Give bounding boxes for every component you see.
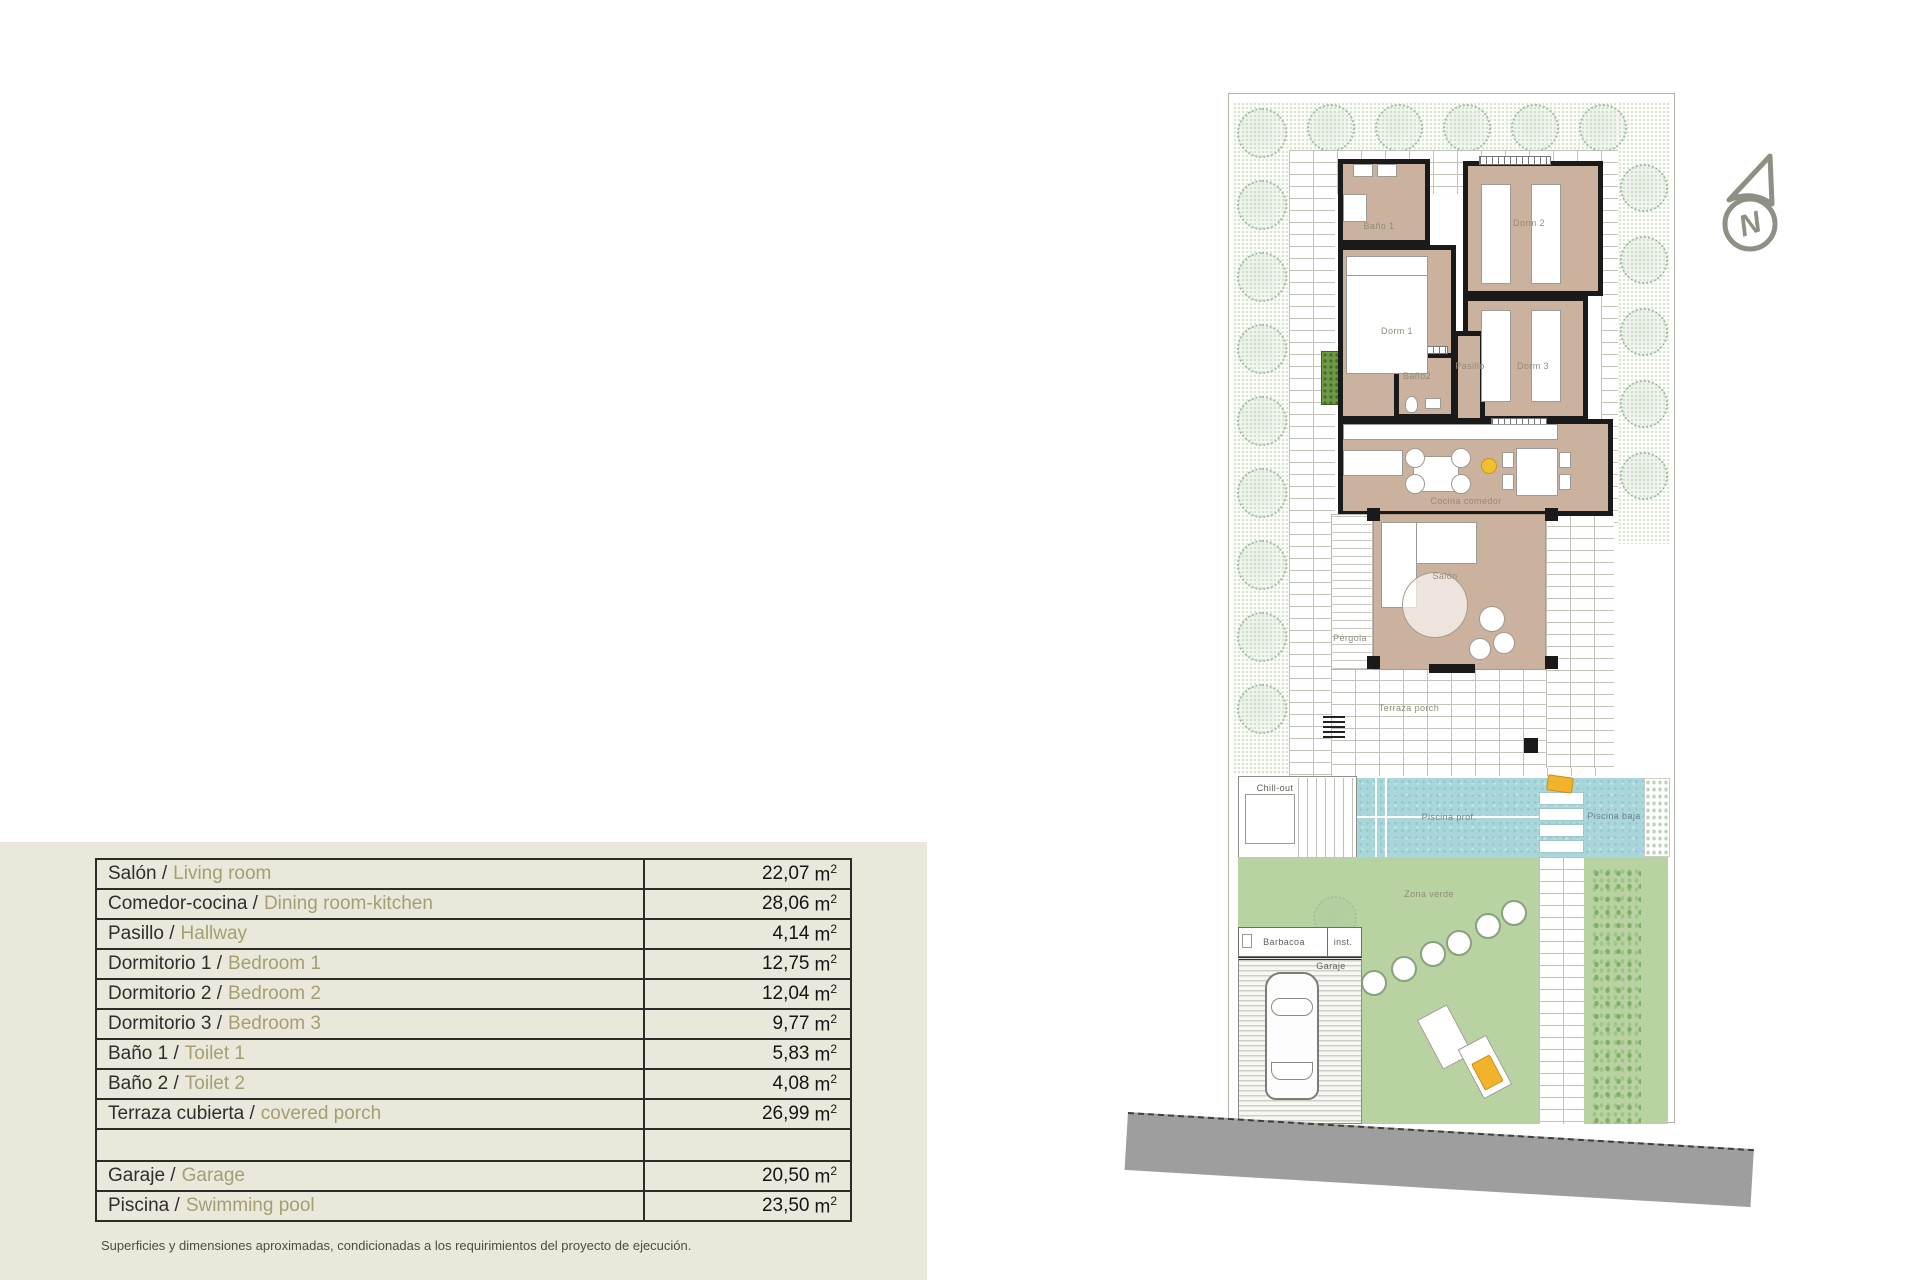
table-row: Dormitorio 1 /Bedroom 1 12,75m2: [97, 950, 850, 980]
kitchen-island: [1343, 450, 1403, 476]
barbacoa-door: [1242, 934, 1252, 948]
stepping-stone: [1475, 913, 1501, 939]
area-value: 26,99: [762, 1103, 810, 1125]
area-unit: m2: [814, 1164, 837, 1188]
room-name-en: Bedroom 1: [228, 953, 321, 975]
room-label-banio2: Baño2: [1403, 371, 1431, 381]
porch-step: [1429, 664, 1475, 673]
lawn-brick-path: [1539, 857, 1584, 1124]
room-name-es: Salón /: [108, 863, 167, 885]
area-unit: m2: [814, 982, 837, 1006]
bed: [1531, 184, 1561, 284]
room-name-es: Pasillo /: [108, 923, 175, 945]
tree-icon: [1237, 108, 1287, 158]
room-name-es: Dormitorio 2 /: [108, 983, 222, 1005]
areas-table: Salón /Living room 22,07m2 Comedor-cocin…: [95, 858, 852, 1222]
terrace-pillar: [1524, 738, 1538, 753]
area-value: 4,14: [773, 923, 810, 945]
porch-pillar: [1367, 656, 1380, 669]
tree-icon: [1237, 180, 1287, 230]
bed: [1531, 310, 1561, 402]
side-table: [1493, 632, 1515, 654]
dining-table: [1516, 448, 1558, 496]
tree-icon: [1375, 104, 1423, 152]
porch-pillar: [1545, 508, 1558, 521]
towel-icon: [1546, 774, 1574, 793]
room-name-en: Toilet 2: [185, 1073, 245, 1095]
tree-icon: [1620, 236, 1668, 284]
area-unit: m2: [814, 952, 837, 976]
label-piscina-prof: Piscina prof.: [1422, 812, 1477, 822]
room-name-es: Comedor-cocina /: [108, 893, 258, 915]
shower: [1343, 194, 1367, 222]
chair: [1502, 474, 1514, 490]
table-row: Baño 2 /Toilet 2 4,08m2: [97, 1070, 850, 1100]
tree-icon: [1237, 684, 1287, 734]
drain-grate: [1323, 716, 1345, 738]
sink: [1353, 164, 1373, 177]
room-label-banio1: Baño 1: [1364, 221, 1395, 231]
porch-pillar: [1545, 656, 1558, 669]
label-zona-verde: Zona verde: [1404, 889, 1454, 899]
pool-step: [1539, 824, 1584, 837]
bed: [1481, 310, 1511, 402]
window-sill: [1479, 156, 1551, 165]
area-unit: m2: [814, 1102, 837, 1126]
side-table: [1469, 638, 1491, 660]
table-row: Salón /Living room 22,07m2: [97, 860, 850, 890]
barbacoa-divider: [1327, 927, 1328, 957]
towel-icon: [1471, 1054, 1504, 1090]
area-unit: m2: [814, 922, 837, 946]
stool: [1405, 448, 1425, 468]
pool-step: [1539, 840, 1584, 853]
sink: [1425, 398, 1441, 409]
room-name-en: Garage: [182, 1165, 245, 1187]
terrace-paving-right: [1546, 514, 1614, 768]
area-unit: m2: [814, 1072, 837, 1096]
area-value: 12,75: [762, 953, 810, 975]
chair: [1559, 452, 1571, 468]
stepping-stone: [1501, 900, 1527, 926]
room-name-es: Baño 2 /: [108, 1073, 179, 1095]
area-value: 5,83: [773, 1043, 810, 1065]
tree-icon: [1237, 396, 1287, 446]
room-label-pasillo: Pasillo: [1455, 361, 1484, 371]
tree-icon: [1237, 540, 1287, 590]
road: [1125, 1112, 1754, 1207]
car-icon: [1265, 972, 1319, 1100]
area-unit: m2: [814, 1042, 837, 1066]
bed: [1481, 184, 1511, 284]
chair: [1559, 474, 1571, 490]
table-row: Comedor-cocina /Dining room-kitchen 28,0…: [97, 890, 850, 920]
tree-icon: [1511, 104, 1559, 152]
site-plan: Baño 1 Dorm 1 Dorm 2 Dorm 3 Baño2 Pasill…: [1228, 93, 1675, 1123]
area-value: 4,08: [773, 1073, 810, 1095]
tree-icon: [1237, 468, 1287, 518]
tree-icon: [1443, 104, 1491, 152]
label-terraza: Terraza porch: [1379, 703, 1439, 713]
area-value: 23,50: [762, 1195, 810, 1217]
room-label-dorm2: Dorm 2: [1513, 218, 1545, 228]
area-unit: m2: [814, 862, 837, 886]
room-name-es: Baño 1 /: [108, 1043, 179, 1065]
room-label-salon: Salón: [1432, 571, 1457, 581]
bed-pillow: [1346, 256, 1428, 276]
room-name-en: Swimming pool: [186, 1195, 315, 1217]
room-name-es: Dormitorio 3 /: [108, 1013, 222, 1035]
label-chillout: Chill-out: [1257, 783, 1294, 793]
stool: [1451, 448, 1471, 468]
room-label-dorm3: Dorm 3: [1517, 361, 1549, 371]
rug: [1402, 572, 1468, 638]
tree-icon: [1237, 324, 1287, 374]
room-name-es: Dormitorio 1 /: [108, 953, 222, 975]
chair: [1502, 452, 1514, 468]
area-value: 20,50: [762, 1165, 810, 1187]
pool-step: [1539, 792, 1584, 805]
sink: [1377, 164, 1397, 177]
table-spacer-row: [97, 1130, 850, 1162]
tree-icon: [1579, 104, 1627, 152]
stepping-stone: [1361, 970, 1387, 996]
table-row: Baño 1 /Toilet 1 5,83m2: [97, 1040, 850, 1070]
table-row: Dormitorio 3 /Bedroom 3 9,77m2: [97, 1010, 850, 1040]
toilet: [1405, 396, 1418, 413]
footnote: Superficies y dimensiones aproximadas, c…: [101, 1238, 691, 1253]
room-label-dorm1: Dorm 1: [1381, 326, 1413, 336]
area-value: 12,04: [762, 983, 810, 1005]
tree-icon: [1237, 252, 1287, 302]
room-name-en: Bedroom 3: [228, 1013, 321, 1035]
tree-icon: [1307, 104, 1355, 152]
label-piscina-baja: Piscina baja: [1587, 811, 1640, 821]
stool: [1405, 474, 1425, 494]
brick-path-left: [1289, 150, 1335, 776]
flower-decor: [1481, 458, 1497, 474]
kitchen-counter: [1343, 424, 1558, 440]
room-name-en: Bedroom 2: [228, 983, 321, 1005]
compass-north-icon: N: [1712, 148, 1794, 264]
table-row: Piscina /Swimming pool 23,50m2: [97, 1192, 850, 1220]
room-name-es: Garaje /: [108, 1165, 176, 1187]
table-row: Garaje /Garage 20,50m2: [97, 1162, 850, 1192]
porch-pillar: [1367, 508, 1380, 521]
stepping-stone: [1446, 930, 1472, 956]
label-barbacoa: Barbacoa: [1263, 937, 1305, 947]
table-row: Dormitorio 2 /Bedroom 2 12,04m2: [97, 980, 850, 1010]
stepping-stone: [1391, 956, 1417, 982]
area-value: 28,06: [762, 893, 810, 915]
tree-icon: [1620, 164, 1668, 212]
tree-icon: [1620, 308, 1668, 356]
stool: [1451, 474, 1471, 494]
page-background: { "table": { "unit": "m", "unit_sup": "2…: [0, 0, 1920, 1280]
room-name-es: Piscina /: [108, 1195, 180, 1217]
area-unit: m2: [814, 1194, 837, 1218]
tree-icon: [1620, 452, 1668, 500]
label-pergola: Pérgola: [1333, 633, 1367, 643]
tree-icon: [1620, 380, 1668, 428]
room-name-es: Terraza cubierta /: [108, 1103, 255, 1125]
chillout-pergola-slats: [1298, 778, 1356, 857]
room-name-en: Toilet 1: [185, 1043, 245, 1065]
room-label-cocina: Cocina comedor: [1430, 496, 1501, 506]
tree-icon: [1237, 612, 1287, 662]
area-value: 22,07: [762, 863, 810, 885]
label-inst: inst.: [1334, 937, 1353, 947]
pool-step: [1539, 808, 1584, 821]
area-unit: m2: [814, 892, 837, 916]
pergola-strip: [1331, 514, 1373, 670]
room-name-en: covered porch: [261, 1103, 381, 1125]
room-name-en: Dining room-kitchen: [264, 893, 433, 915]
area-value: 9,77: [773, 1013, 810, 1035]
hedge-strip: [1591, 867, 1641, 1124]
area-unit: m2: [814, 1012, 837, 1036]
stepping-stone: [1420, 941, 1446, 967]
side-table: [1479, 606, 1505, 632]
svg-text:N: N: [1735, 205, 1767, 243]
label-garaje: Garaje: [1316, 961, 1345, 971]
chillout-sofa: [1245, 794, 1295, 844]
table-row: Pasillo /Hallway 4,14m2: [97, 920, 850, 950]
room-name-en: Living room: [173, 863, 271, 885]
poolside-plants: [1644, 778, 1670, 857]
table-row: Terraza cubierta /covered porch 26,99m2: [97, 1100, 850, 1130]
room-name-en: Hallway: [181, 923, 248, 945]
